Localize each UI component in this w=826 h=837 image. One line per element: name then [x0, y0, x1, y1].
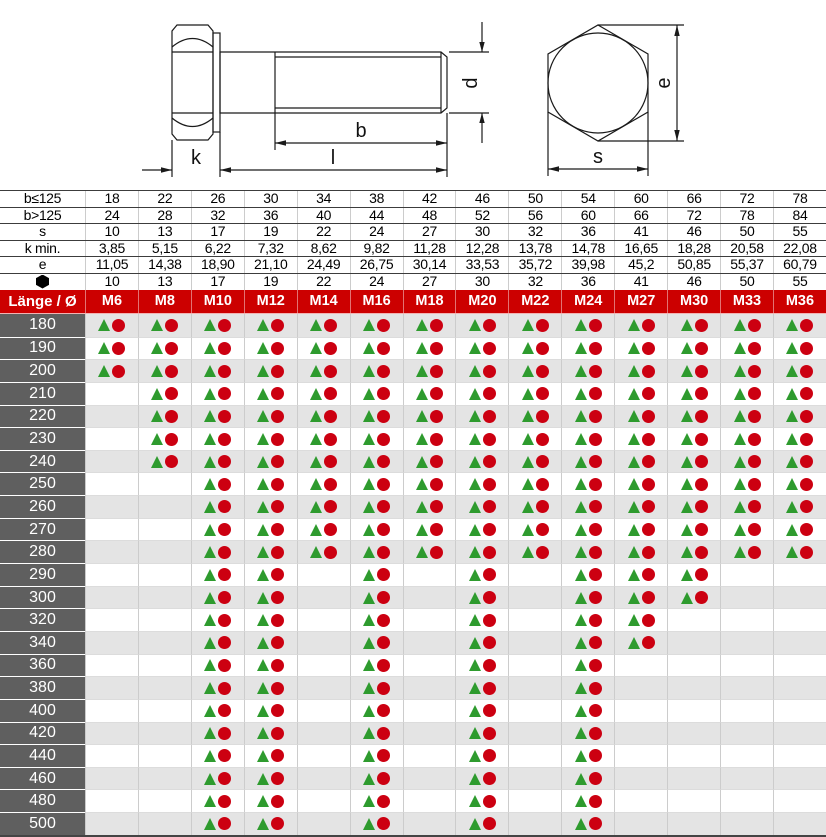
availability-cell: [720, 405, 773, 428]
dim-value: 22: [297, 274, 350, 291]
availability-cell: [773, 608, 826, 631]
dimension-row: b>1252428323640444852566066727884: [0, 208, 826, 225]
available-circle-icon: [536, 523, 549, 536]
available-triangle-icon: [204, 433, 216, 445]
available-triangle-icon: [681, 365, 693, 377]
availability-cell: [561, 518, 614, 541]
available-triangle-icon: [363, 410, 375, 422]
dim-label-l: l: [331, 147, 335, 169]
availability-cell: [561, 699, 614, 722]
available-circle-icon: [324, 478, 337, 491]
availability-cell: [614, 586, 667, 609]
available-circle-icon: [218, 614, 231, 627]
dim-value: 50: [720, 274, 773, 291]
available-circle-icon: [377, 500, 390, 513]
size-column-header: M14: [297, 290, 350, 313]
available-circle-icon: [642, 500, 655, 513]
available-circle-icon: [271, 817, 284, 830]
available-triangle-icon: [681, 410, 693, 422]
availability-cell: [508, 405, 561, 428]
available-circle-icon: [218, 500, 231, 513]
availability-cell: [614, 631, 667, 654]
length-row: 210: [0, 382, 826, 405]
availability-cell: [191, 495, 244, 518]
availability-cell: [403, 314, 456, 337]
availability-cell: [720, 767, 773, 790]
dim-value: 52: [455, 208, 508, 224]
available-circle-icon: [695, 342, 708, 355]
available-circle-icon: [218, 636, 231, 649]
dim-value: 10: [85, 224, 138, 240]
available-triangle-icon: [310, 365, 322, 377]
available-circle-icon: [271, 546, 284, 559]
availability-cell: [508, 722, 561, 745]
availability-cell: [297, 699, 350, 722]
availability-cell: [561, 314, 614, 337]
available-circle-icon: [324, 546, 337, 559]
dim-value: 30: [455, 224, 508, 240]
available-circle-icon: [430, 523, 443, 536]
available-circle-icon: [695, 478, 708, 491]
dim-value: 22,08: [773, 241, 826, 257]
available-circle-icon: [377, 568, 390, 581]
availability-cell: [508, 540, 561, 563]
length-row-label: 480: [0, 789, 85, 812]
availability-cell: [138, 314, 191, 337]
availability-cell: [350, 654, 403, 677]
available-circle-icon: [271, 636, 284, 649]
availability-cell: [720, 812, 773, 835]
available-circle-icon: [324, 433, 337, 446]
availability-cell: [244, 427, 297, 450]
availability-cell: [455, 744, 508, 767]
dim-label-b: b: [355, 120, 366, 142]
availability-cell: [773, 337, 826, 360]
availability-cell: [85, 608, 138, 631]
availability-cell: [297, 314, 350, 337]
available-triangle-icon: [734, 365, 746, 377]
availability-cell: [191, 540, 244, 563]
available-triangle-icon: [416, 546, 428, 558]
available-triangle-icon: [734, 388, 746, 400]
availability-cell: [138, 699, 191, 722]
size-column-header: M30: [667, 290, 720, 313]
available-triangle-icon: [575, 705, 587, 717]
availability-cell: [350, 563, 403, 586]
availability-cell: [667, 744, 720, 767]
available-triangle-icon: [257, 433, 269, 445]
available-triangle-icon: [204, 773, 216, 785]
availability-cell: [508, 744, 561, 767]
available-circle-icon: [589, 636, 602, 649]
availability-cell: [508, 427, 561, 450]
availability-cell: [191, 676, 244, 699]
length-row: 230: [0, 427, 826, 450]
available-triangle-icon: [363, 682, 375, 694]
availability-cell: [508, 359, 561, 382]
available-circle-icon: [483, 500, 496, 513]
availability-cell: [667, 359, 720, 382]
availability-cell: [455, 540, 508, 563]
availability-cell: [614, 744, 667, 767]
availability-cell: [85, 359, 138, 382]
size-column-header: M27: [614, 290, 667, 313]
length-row: 440: [0, 744, 826, 767]
available-circle-icon: [536, 319, 549, 332]
availability-cell: [85, 405, 138, 428]
availability-cell: [138, 337, 191, 360]
available-circle-icon: [589, 591, 602, 604]
available-circle-icon: [218, 433, 231, 446]
available-triangle-icon: [734, 546, 746, 558]
available-circle-icon: [483, 523, 496, 536]
length-row-label: 250: [0, 472, 85, 495]
availability-cell: [403, 359, 456, 382]
availability-cell: [85, 631, 138, 654]
available-circle-icon: [748, 387, 761, 400]
availability-cell: [297, 789, 350, 812]
availability-cell: [455, 359, 508, 382]
available-triangle-icon: [363, 637, 375, 649]
availability-cell: [773, 405, 826, 428]
availability-cell: [85, 540, 138, 563]
available-triangle-icon: [469, 592, 481, 604]
length-row-label: 230: [0, 427, 85, 450]
available-circle-icon: [165, 365, 178, 378]
matrix-corner-label: Länge / Ø: [0, 290, 85, 313]
availability-cell: [244, 405, 297, 428]
dim-value: 18,28: [667, 241, 720, 257]
technical-drawing: k l b d e s: [0, 0, 826, 190]
available-circle-icon: [112, 342, 125, 355]
available-circle-icon: [642, 387, 655, 400]
availability-cell: [350, 767, 403, 790]
available-triangle-icon: [204, 456, 216, 468]
available-circle-icon: [483, 614, 496, 627]
available-circle-icon: [165, 319, 178, 332]
available-triangle-icon: [204, 659, 216, 671]
availability-cell: [508, 608, 561, 631]
available-circle-icon: [165, 387, 178, 400]
length-row-label: 280: [0, 540, 85, 563]
availability-cell: [138, 767, 191, 790]
available-triangle-icon: [98, 342, 110, 354]
availability-cell: [244, 472, 297, 495]
available-triangle-icon: [734, 342, 746, 354]
available-triangle-icon: [363, 773, 375, 785]
available-circle-icon: [271, 478, 284, 491]
dim-value: 34: [297, 191, 350, 207]
available-triangle-icon: [628, 546, 640, 558]
length-row-label: 460: [0, 767, 85, 790]
available-circle-icon: [536, 342, 549, 355]
availability-cell: [773, 518, 826, 541]
availability-cell: [455, 518, 508, 541]
available-circle-icon: [324, 500, 337, 513]
length-row-label: 180: [0, 314, 85, 337]
available-triangle-icon: [522, 365, 534, 377]
available-circle-icon: [271, 568, 284, 581]
available-circle-icon: [589, 614, 602, 627]
available-triangle-icon: [469, 659, 481, 671]
dim-value: 30: [455, 274, 508, 291]
availability-cell: [191, 472, 244, 495]
availability-cell: [297, 563, 350, 586]
available-circle-icon: [695, 568, 708, 581]
available-triangle-icon: [257, 592, 269, 604]
availability-cell: [508, 631, 561, 654]
available-triangle-icon: [628, 388, 640, 400]
available-triangle-icon: [469, 705, 481, 717]
dim-value: 41: [614, 224, 667, 240]
available-triangle-icon: [151, 433, 163, 445]
availability-cell: [350, 676, 403, 699]
available-triangle-icon: [257, 319, 269, 331]
available-circle-icon: [589, 704, 602, 717]
available-triangle-icon: [469, 342, 481, 354]
availability-cell: [720, 631, 773, 654]
dim-value: 46: [455, 191, 508, 207]
dim-value: 42: [403, 191, 456, 207]
availability-cell: [138, 518, 191, 541]
availability-cell: [455, 586, 508, 609]
available-triangle-icon: [575, 795, 587, 807]
availability-cell: [297, 405, 350, 428]
available-circle-icon: [695, 387, 708, 400]
available-circle-icon: [536, 365, 549, 378]
available-circle-icon: [483, 365, 496, 378]
available-triangle-icon: [575, 773, 587, 785]
availability-cell: [350, 495, 403, 518]
dim-value: 60,79: [773, 257, 826, 273]
availability-cell: [244, 518, 297, 541]
dim-value: 13,78: [508, 241, 561, 257]
availability-cell: [191, 382, 244, 405]
available-triangle-icon: [575, 501, 587, 513]
dim-value: 50: [720, 224, 773, 240]
available-circle-icon: [377, 365, 390, 378]
size-column-header: M12: [244, 290, 297, 313]
available-triangle-icon: [628, 410, 640, 422]
available-circle-icon: [483, 817, 496, 830]
availability-cell: [297, 586, 350, 609]
available-triangle-icon: [734, 501, 746, 513]
dim-value: 66: [614, 208, 667, 224]
availability-cell: [403, 767, 456, 790]
dim-value: 22: [297, 224, 350, 240]
available-circle-icon: [218, 591, 231, 604]
dim-value: 20,58: [720, 241, 773, 257]
length-row: 500: [0, 812, 826, 835]
availability-cell: [508, 337, 561, 360]
dim-value: 55: [773, 224, 826, 240]
availability-cell: [403, 744, 456, 767]
available-circle-icon: [642, 365, 655, 378]
dim-value: 36: [561, 224, 614, 240]
length-row-label: 200: [0, 359, 85, 382]
available-triangle-icon: [469, 456, 481, 468]
length-row-label: 300: [0, 586, 85, 609]
dim-value: 24,49: [297, 257, 350, 273]
length-row: 200: [0, 359, 826, 382]
available-circle-icon: [483, 342, 496, 355]
availability-cell: [350, 744, 403, 767]
size-column-header: M24: [561, 290, 614, 313]
availability-cell: [244, 676, 297, 699]
availability-cell: [455, 382, 508, 405]
hexagon-icon: [36, 275, 49, 289]
dim-value: 46: [667, 224, 720, 240]
available-circle-icon: [430, 546, 443, 559]
available-circle-icon: [589, 546, 602, 559]
availability-cell: [455, 812, 508, 835]
dim-value: 27: [403, 224, 456, 240]
available-triangle-icon: [575, 750, 587, 762]
availability-cell: [350, 359, 403, 382]
availability-cell: [508, 472, 561, 495]
available-circle-icon: [800, 387, 813, 400]
availability-cell: [614, 337, 667, 360]
available-circle-icon: [695, 523, 708, 536]
available-triangle-icon: [786, 546, 798, 558]
dim-value: 19: [244, 274, 297, 291]
availability-cell: [667, 405, 720, 428]
available-circle-icon: [377, 704, 390, 717]
availability-cell: [297, 382, 350, 405]
available-circle-icon: [748, 433, 761, 446]
available-circle-icon: [483, 704, 496, 717]
available-circle-icon: [377, 478, 390, 491]
length-row-label: 320: [0, 608, 85, 631]
available-triangle-icon: [204, 388, 216, 400]
available-circle-icon: [377, 636, 390, 649]
availability-cell: [138, 359, 191, 382]
length-row-label: 340: [0, 631, 85, 654]
length-row-label: 500: [0, 812, 85, 835]
available-circle-icon: [483, 591, 496, 604]
availability-cell: [773, 586, 826, 609]
availability-cell: [244, 767, 297, 790]
length-row: 240: [0, 450, 826, 473]
dim-value: 32: [508, 224, 561, 240]
available-circle-icon: [748, 478, 761, 491]
available-triangle-icon: [681, 433, 693, 445]
availability-cell: [297, 518, 350, 541]
available-circle-icon: [589, 772, 602, 785]
available-circle-icon: [271, 410, 284, 423]
available-circle-icon: [589, 365, 602, 378]
available-triangle-icon: [257, 501, 269, 513]
availability-cell: [614, 608, 667, 631]
availability-cell: [720, 450, 773, 473]
available-triangle-icon: [681, 524, 693, 536]
availability-cell: [403, 405, 456, 428]
availability-cell: [350, 405, 403, 428]
available-triangle-icon: [575, 524, 587, 536]
availability-cell: [85, 518, 138, 541]
available-triangle-icon: [575, 342, 587, 354]
available-circle-icon: [589, 659, 602, 672]
available-triangle-icon: [204, 727, 216, 739]
available-circle-icon: [642, 478, 655, 491]
availability-cell: [350, 699, 403, 722]
availability-cell: [455, 631, 508, 654]
availability-cell: [508, 654, 561, 677]
dim-row-label: s: [0, 224, 85, 240]
dim-value: 28: [138, 208, 191, 224]
available-circle-icon: [589, 387, 602, 400]
available-circle-icon: [483, 319, 496, 332]
dim-value: 14,38: [138, 257, 191, 273]
available-circle-icon: [642, 342, 655, 355]
available-triangle-icon: [469, 388, 481, 400]
available-circle-icon: [642, 591, 655, 604]
available-triangle-icon: [363, 546, 375, 558]
available-triangle-icon: [469, 637, 481, 649]
available-triangle-icon: [469, 818, 481, 830]
availability-cell: [297, 427, 350, 450]
available-circle-icon: [800, 523, 813, 536]
available-triangle-icon: [310, 342, 322, 354]
availability-cell: [191, 337, 244, 360]
size-column-header: M10: [191, 290, 244, 313]
available-circle-icon: [695, 591, 708, 604]
availability-cell: [85, 337, 138, 360]
available-triangle-icon: [522, 501, 534, 513]
available-circle-icon: [695, 500, 708, 513]
dim-value: 54: [561, 191, 614, 207]
availability-cell: [138, 586, 191, 609]
availability-cell: [720, 382, 773, 405]
available-circle-icon: [430, 410, 443, 423]
availability-cell: [561, 608, 614, 631]
availability-cell: [561, 767, 614, 790]
length-row: 280: [0, 540, 826, 563]
available-triangle-icon: [469, 727, 481, 739]
available-circle-icon: [377, 387, 390, 400]
available-circle-icon: [271, 772, 284, 785]
available-circle-icon: [377, 727, 390, 740]
dim-value: 24: [85, 208, 138, 224]
available-triangle-icon: [575, 682, 587, 694]
availability-cell: [403, 563, 456, 586]
availability-cell: [191, 518, 244, 541]
available-circle-icon: [536, 410, 549, 423]
availability-cell: [350, 472, 403, 495]
available-triangle-icon: [628, 433, 640, 445]
availability-cell: [667, 586, 720, 609]
available-circle-icon: [589, 682, 602, 695]
availability-cell: [720, 518, 773, 541]
available-circle-icon: [377, 682, 390, 695]
availability-cell: [191, 789, 244, 812]
available-triangle-icon: [734, 478, 746, 490]
available-triangle-icon: [363, 365, 375, 377]
available-circle-icon: [695, 319, 708, 332]
availability-cell: [720, 427, 773, 450]
availability-cell: [455, 495, 508, 518]
dim-row-label: [0, 274, 85, 291]
available-circle-icon: [695, 455, 708, 468]
availability-cell: [508, 676, 561, 699]
length-row: 180: [0, 314, 826, 337]
available-circle-icon: [324, 365, 337, 378]
available-circle-icon: [642, 568, 655, 581]
available-circle-icon: [218, 342, 231, 355]
available-triangle-icon: [628, 365, 640, 377]
length-row-label: 190: [0, 337, 85, 360]
available-circle-icon: [218, 795, 231, 808]
